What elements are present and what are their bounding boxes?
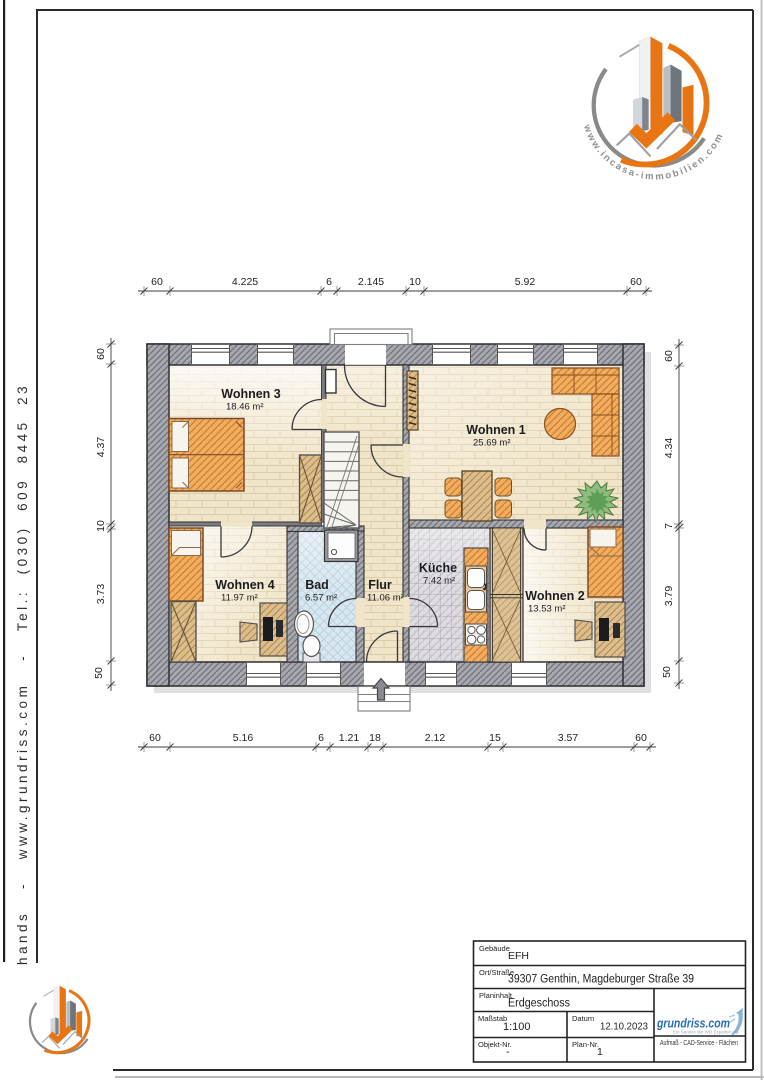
svg-text:6: 6: [318, 732, 324, 744]
svg-text:60: 60: [630, 276, 642, 288]
svg-text:13.53 m²: 13.53 m²: [528, 604, 566, 615]
svg-text:Ein Service der IVD Experten A: Ein Service der IVD Experten AG: [673, 1030, 740, 1035]
svg-text:6: 6: [326, 276, 332, 288]
svg-text:60: 60: [151, 276, 163, 288]
svg-text:1.21: 1.21: [339, 732, 360, 744]
svg-text:hands - www.grundriss.com: hands - www.grundriss.com - Tel.: (030) …: [15, 383, 30, 965]
svg-text:2.145: 2.145: [358, 276, 384, 288]
svg-text:39307 Genthin, Magdeburger Str: 39307 Genthin, Magdeburger Straße 39: [508, 972, 694, 986]
svg-text:50: 50: [661, 666, 673, 678]
svg-text:10: 10: [95, 520, 107, 532]
svg-text:Wohnen 1: Wohnen 1: [466, 423, 526, 437]
svg-text:10: 10: [409, 276, 421, 288]
svg-text:3.79: 3.79: [663, 586, 675, 607]
svg-text:11.97 m²: 11.97 m²: [221, 593, 258, 604]
svg-text:1:100: 1:100: [503, 1021, 531, 1033]
svg-text:Erdgeschoss: Erdgeschoss: [508, 998, 570, 1010]
svg-text:18.46 m²: 18.46 m²: [226, 402, 264, 413]
svg-text:Wohnen 4: Wohnen 4: [215, 578, 275, 592]
svg-text:60: 60: [149, 732, 161, 744]
svg-text:3.57: 3.57: [558, 732, 579, 744]
svg-text:Küche: Küche: [419, 561, 457, 575]
svg-text:grundriss.com: grundriss.com: [656, 1016, 730, 1031]
svg-text:60: 60: [635, 732, 647, 744]
svg-text:-: -: [506, 1046, 510, 1058]
svg-text:Plan-Nr.: Plan-Nr.: [572, 1040, 599, 1049]
svg-text:4.37: 4.37: [95, 437, 107, 458]
svg-text:60: 60: [95, 348, 107, 360]
svg-text:60: 60: [663, 350, 675, 362]
svg-text:12.10.2023: 12.10.2023: [600, 1021, 648, 1033]
svg-text:3.73: 3.73: [95, 584, 107, 605]
svg-text:4.34: 4.34: [663, 438, 675, 459]
svg-text:Flur: Flur: [368, 578, 392, 592]
svg-text:EFH: EFH: [508, 950, 529, 962]
svg-text:Wohnen 2: Wohnen 2: [525, 589, 585, 603]
svg-text:6.57 m²: 6.57 m²: [305, 593, 337, 604]
svg-text:11.06 m²: 11.06 m²: [367, 593, 404, 604]
svg-text:5.92: 5.92: [515, 276, 536, 288]
svg-text:18: 18: [369, 732, 381, 744]
svg-text:5.16: 5.16: [233, 732, 254, 744]
svg-text:1: 1: [597, 1046, 603, 1058]
svg-text:15: 15: [489, 732, 501, 744]
svg-text:Gebäude: Gebäude: [479, 944, 510, 953]
svg-text:4.225: 4.225: [232, 276, 258, 288]
svg-text:Aufmaß - CAD-Service - Flächen: Aufmaß - CAD-Service - Flächen: [660, 1040, 738, 1047]
svg-text:Wohnen 3: Wohnen 3: [221, 387, 281, 401]
svg-text:7: 7: [663, 523, 675, 529]
svg-text:Bad: Bad: [305, 578, 329, 592]
svg-text:7.42 m²: 7.42 m²: [423, 576, 455, 587]
svg-text:25.69 m²: 25.69 m²: [473, 438, 511, 449]
svg-text:Datum: Datum: [572, 1014, 594, 1023]
svg-text:2.12: 2.12: [425, 732, 446, 744]
svg-text:50: 50: [93, 667, 105, 679]
